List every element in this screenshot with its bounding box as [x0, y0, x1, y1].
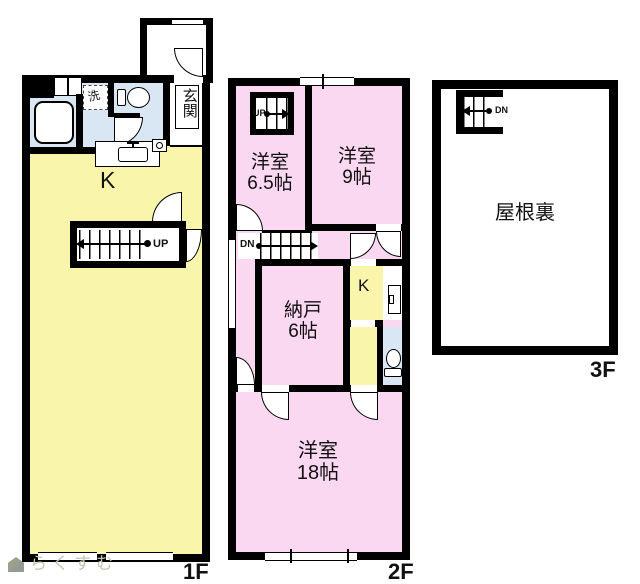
window [172, 19, 203, 25]
room-name: 納戸 [262, 300, 344, 321]
wall [206, 18, 213, 83]
stairs-start-dot [144, 240, 151, 247]
toilet-icon [384, 368, 402, 377]
wall [108, 83, 114, 117]
room-label-western-18: 洋室 18帖 [256, 440, 380, 485]
window-mullion [290, 549, 292, 563]
kitchen-sink-icon [118, 147, 148, 162]
wall [236, 385, 402, 392]
door-opening [351, 385, 377, 392]
water-heater-icon [156, 142, 163, 149]
stairs-down-label: DN [240, 239, 254, 250]
stairs-arrowhead [462, 106, 470, 116]
wall [67, 78, 69, 95]
window [300, 77, 354, 86]
wall [22, 147, 103, 154]
bathtub-icon [34, 101, 74, 144]
room-label-kitchen-2f: K [358, 276, 369, 295]
wall [163, 83, 170, 146]
wall [343, 259, 350, 392]
room-size: 18帖 [256, 462, 380, 484]
stairs-arrow [82, 243, 146, 245]
window [228, 240, 236, 328]
room-label-storage: 納戸 6帖 [262, 300, 344, 343]
floor-plan-canvas: 洗 玄関 K UP 1F UP DN [0, 0, 640, 584]
wall [255, 259, 350, 266]
toilet-icon [386, 349, 401, 368]
room-size: 6.5帖 [233, 173, 307, 194]
toilet-icon [117, 89, 126, 106]
room-size: 9帖 [312, 167, 402, 188]
floor2-label: 2F [388, 560, 414, 584]
door-opening [351, 320, 375, 327]
door-opening [238, 385, 254, 392]
room-label-western-9: 洋室 9帖 [312, 146, 402, 189]
stairs-arrowhead [76, 239, 84, 249]
window-mullion [322, 74, 324, 89]
window-mullion [347, 549, 349, 563]
door-opening [262, 385, 289, 392]
door-opening [351, 259, 376, 266]
entrance-label: 玄関 [180, 88, 197, 118]
stairs-arrowhead [282, 109, 290, 119]
room-size: 6帖 [262, 321, 344, 342]
room-label-attic: 屋根裏 [441, 202, 609, 224]
wall [76, 94, 83, 147]
hall-strip-area [350, 327, 377, 385]
entrance-step-line [170, 145, 202, 147]
wall [140, 18, 147, 80]
stairs-arrow [259, 245, 312, 247]
stairs-arrowhead [310, 241, 318, 251]
brand-logo-text: らくすむ [30, 554, 118, 573]
window [265, 552, 357, 561]
wall [22, 75, 54, 98]
stairs-arrow [267, 113, 283, 115]
toilet-icon [127, 87, 150, 108]
faucet-icon [132, 142, 134, 148]
room-name: 洋室 [256, 440, 380, 462]
room-label-western-65: 洋室 6.5帖 [233, 152, 307, 195]
room-name: 洋室 [233, 152, 307, 173]
floor1-label: 1F [183, 560, 209, 584]
floor3-label: 3F [590, 358, 616, 383]
door-opening [376, 224, 401, 231]
room-label-kitchen-1f: K [100, 168, 115, 194]
stairs-up-label: UP [153, 238, 168, 250]
room-name: 洋室 [312, 146, 402, 167]
sink-unit-icon [389, 295, 394, 304]
stairs-down-label: DN [495, 105, 508, 115]
stairs-start-dot [486, 108, 492, 114]
wall [255, 259, 262, 392]
